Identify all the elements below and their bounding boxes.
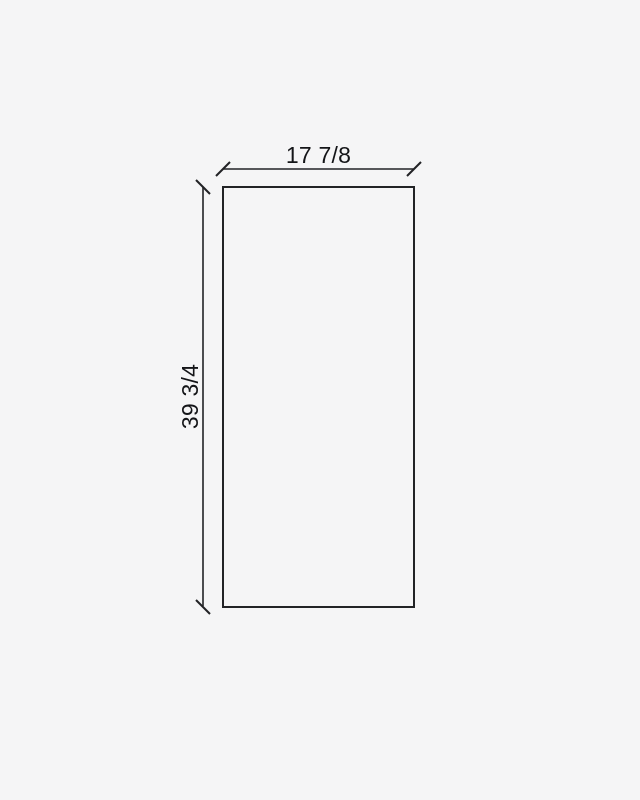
panel-outline xyxy=(223,187,414,607)
page-background: { "drawing": { "width_label": "17 7/8", … xyxy=(0,0,640,800)
width-dimension-label: 17 7/8 xyxy=(286,142,351,168)
dimension-drawing-canvas: 17 7/8 39 3/4 xyxy=(0,0,640,800)
height-dimension-label: 39 3/4 xyxy=(177,364,203,429)
height-dimension: 39 3/4 xyxy=(177,180,210,614)
width-dimension: 17 7/8 xyxy=(216,142,421,176)
panel-dimension-diagram: 17 7/8 39 3/4 xyxy=(0,0,640,800)
